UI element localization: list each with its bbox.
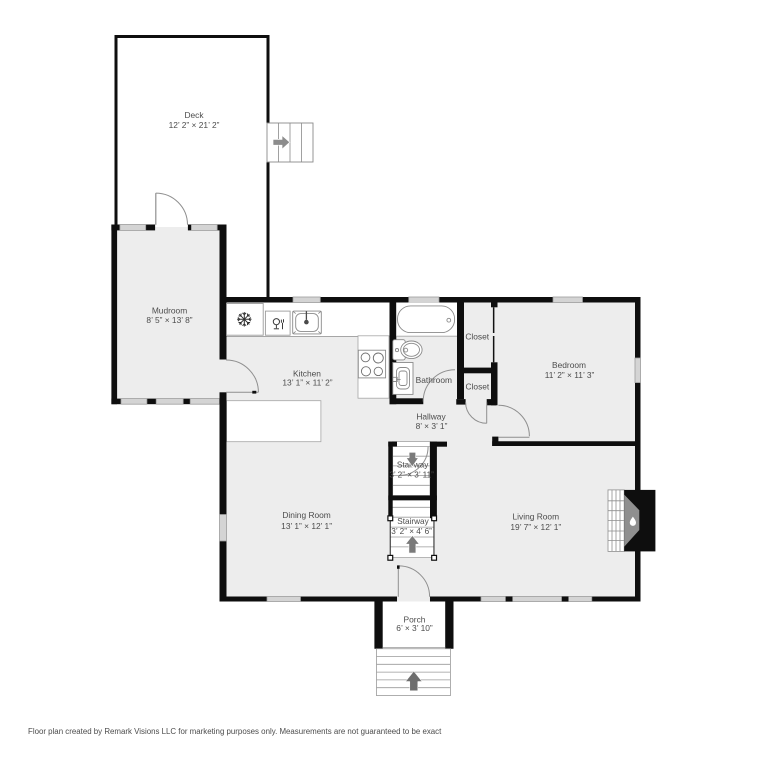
svg-text:13’ 1” × 11’ 2”: 13’ 1” × 11’ 2” xyxy=(282,378,332,388)
svg-text:Hallway: Hallway xyxy=(416,412,446,422)
svg-text:Dining Room: Dining Room xyxy=(282,510,330,520)
svg-text:Stairway: Stairway xyxy=(397,517,429,526)
svg-text:13’ 1” × 12’ 1”: 13’ 1” × 12’ 1” xyxy=(281,521,332,531)
svg-text:Closet: Closet xyxy=(466,382,490,392)
svg-text:8’ 5” × 13’ 8”: 8’ 5” × 13’ 8” xyxy=(146,315,192,325)
svg-text:3’ 2” × 4’ 6”: 3’ 2” × 4’ 6” xyxy=(391,527,432,536)
svg-text:Floor plan created by Remark V: Floor plan created by Remark Visions LLC… xyxy=(28,727,442,736)
svg-text:3’ 2” × 3’ 11”: 3’ 2” × 3’ 11” xyxy=(389,470,434,479)
svg-text:Living Room: Living Room xyxy=(513,512,560,522)
svg-text:12’ 2” × 21’ 2”: 12’ 2” × 21’ 2” xyxy=(169,120,220,130)
svg-text:11’ 2” × 11’ 3”: 11’ 2” × 11’ 3” xyxy=(545,370,595,380)
svg-text:Deck: Deck xyxy=(184,110,204,120)
svg-text:6’ × 3’ 10”: 6’ × 3’ 10” xyxy=(396,623,433,633)
svg-text:Bathroom: Bathroom xyxy=(416,375,452,385)
svg-text:Closet: Closet xyxy=(465,331,489,341)
svg-text:8’ × 3’ 1”: 8’ × 3’ 1” xyxy=(416,421,448,431)
svg-text:Bedroom: Bedroom xyxy=(552,360,586,370)
svg-text:19’ 7” × 12’ 1”: 19’ 7” × 12’ 1” xyxy=(510,522,561,532)
